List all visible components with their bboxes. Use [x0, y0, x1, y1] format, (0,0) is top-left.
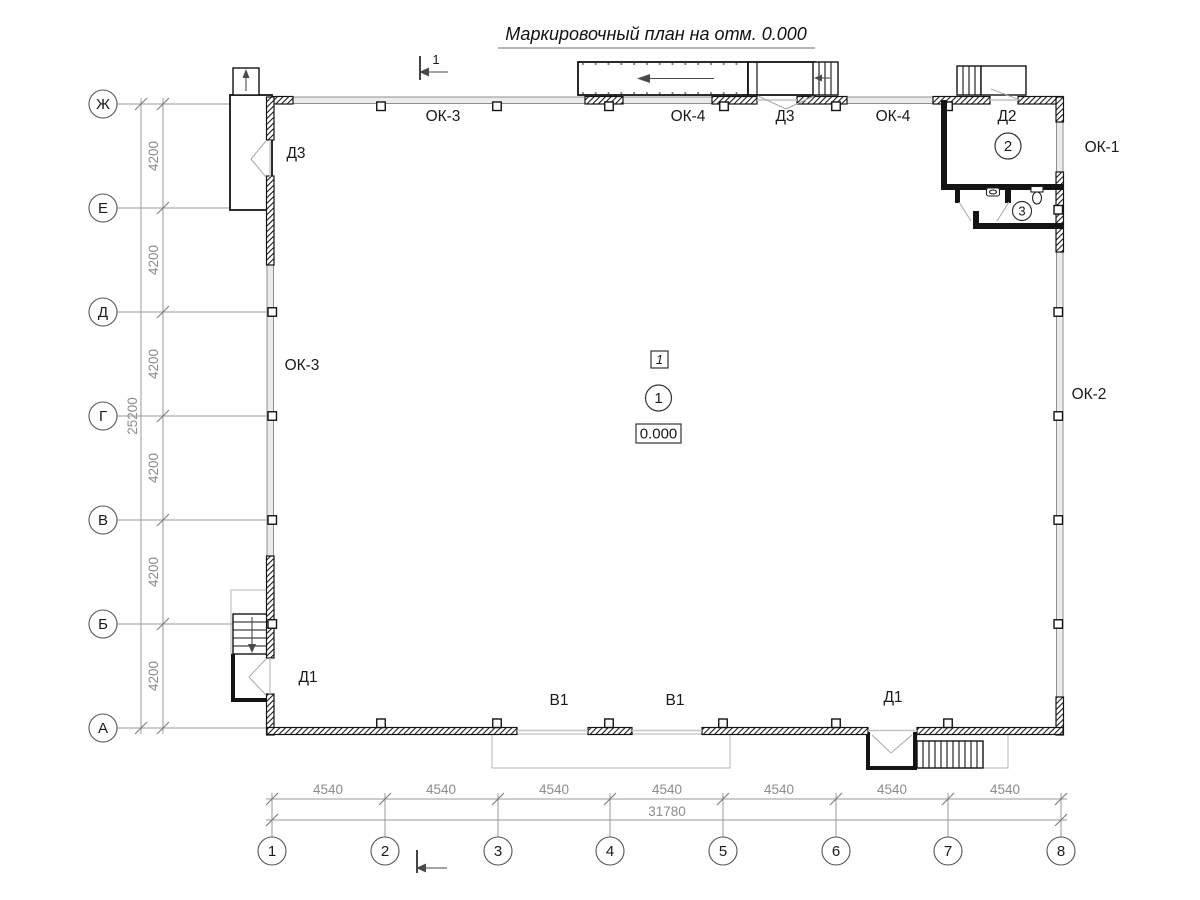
section-label: 1	[432, 52, 439, 67]
axis-row-zh: Ж	[96, 96, 110, 113]
room-type-tag: 1	[656, 352, 663, 367]
dim-31780: 31780	[648, 804, 686, 819]
col-dim-labels: 4540 4540 4540 4540 4540 4540 4540 31780	[313, 782, 1020, 819]
toilet-fixture	[1031, 187, 1043, 205]
dim-25200: 25200	[125, 397, 140, 435]
vestibule-wall	[231, 654, 235, 702]
entrance-top-right	[957, 66, 1026, 95]
col-axes: 4540 4540 4540 4540 4540 4540 4540 31780…	[258, 782, 1075, 865]
dim-4200: 4200	[146, 349, 161, 379]
axis-col-2: 2	[381, 843, 389, 860]
dim-4540: 4540	[877, 782, 907, 797]
room3-number: 3	[1018, 204, 1025, 219]
dim-4200: 4200	[146, 453, 161, 483]
dim-4200: 4200	[146, 661, 161, 691]
axis-col-4: 4	[606, 843, 614, 860]
wc-partition	[955, 190, 960, 203]
dim-4540: 4540	[313, 782, 343, 797]
porch-top-left	[230, 68, 272, 210]
door-swing-d1-left	[249, 659, 266, 695]
axis-col-8: 8	[1057, 843, 1065, 860]
axis-col-7: 7	[944, 843, 952, 860]
landing-outline	[748, 62, 815, 95]
window-mullions	[268, 102, 1063, 728]
label-ok3-top: ОК-3	[426, 108, 461, 125]
room2-number: 2	[1004, 138, 1012, 155]
ramp-top	[578, 62, 838, 95]
room3-bottom-wall	[973, 223, 1063, 229]
sink-fixture	[987, 188, 1000, 196]
drawing-title: Маркировочный план на отм. 0.000	[498, 24, 815, 48]
wc-door-swing	[959, 202, 971, 221]
dim-4540: 4540	[426, 782, 456, 797]
section-mark-top: 1	[419, 52, 448, 80]
elevation-value: 0.000	[640, 426, 678, 443]
axis-row-a: А	[98, 720, 108, 737]
room2-bottom-wall	[941, 184, 1063, 190]
section-mark-bottom	[416, 850, 447, 873]
vestibule-wall	[866, 766, 917, 770]
axis-row-d: Д	[98, 304, 108, 321]
dim-4540: 4540	[990, 782, 1020, 797]
dim-4200: 4200	[146, 245, 161, 275]
axis-col-6: 6	[832, 843, 840, 860]
door-swings	[249, 89, 1020, 695]
hall-number: 1	[654, 390, 662, 407]
vestibule-bottom-right	[866, 732, 1008, 770]
axis-row-v: В	[98, 512, 108, 529]
vestibule-wall	[866, 732, 870, 770]
entry-landing	[981, 66, 1026, 95]
label-d1-left: Д1	[298, 669, 317, 686]
dim-4540: 4540	[652, 782, 682, 797]
hall-markers: 1 1 0.000	[636, 351, 681, 443]
axis-col-1: 1	[268, 843, 276, 860]
label-ok4-right: ОК-4	[876, 108, 911, 125]
dim-4540: 4540	[764, 782, 794, 797]
axis-row-b: Б	[98, 616, 108, 633]
floor-plan-page: Маркировочный план на отм. 0.000	[0, 0, 1200, 900]
room2-left-wall	[941, 100, 947, 188]
axis-col-5: 5	[719, 843, 727, 860]
label-d3-porch: Д3	[286, 145, 305, 162]
opening-labels: ОК-3 ОК-4 Д3 ОК-4 Д2 ОК-1 ОК-2 ОК-3 Д3 Д…	[285, 108, 1120, 709]
col-axis-bubbles: 1 2 3 4 5 6 7 8	[258, 837, 1075, 865]
label-ok1: ОК-1	[1085, 139, 1120, 156]
window-bands	[267, 97, 1063, 735]
label-v1-left: В1	[550, 692, 569, 709]
row-axis-bubbles: Ж Е Д Г В Б А	[89, 90, 117, 742]
label-d1-right: Д1	[883, 689, 902, 706]
wc-wall-return	[973, 211, 979, 223]
door-swing-d1-right	[872, 735, 912, 753]
page-title: Маркировочный план на отм. 0.000	[505, 24, 807, 44]
label-v1-right: В1	[666, 692, 685, 709]
axis-row-g: Г	[99, 408, 107, 425]
axis-row-e: Е	[98, 200, 108, 217]
dim-4200: 4200	[146, 141, 161, 171]
label-d3-top: Д3	[775, 108, 794, 125]
label-ok3-left: ОК-3	[285, 357, 320, 374]
gate-apron-outline	[492, 734, 730, 768]
label-ok2: ОК-2	[1072, 386, 1107, 403]
opening-thresholds	[270, 100, 1018, 731]
axis-col-3: 3	[494, 843, 502, 860]
masonry-piers	[267, 97, 1064, 736]
label-d2: Д2	[997, 108, 1016, 125]
label-ok4-left: ОК-4	[671, 108, 706, 125]
dim-4540: 4540	[539, 782, 569, 797]
porch-outline	[230, 95, 272, 210]
floor-plan-drawing: Маркировочный план на отм. 0.000	[0, 0, 1200, 900]
stairs-box	[917, 741, 983, 768]
wc-door-swing	[997, 202, 1009, 221]
dim-4200: 4200	[146, 557, 161, 587]
wc-partition	[1005, 190, 1011, 203]
